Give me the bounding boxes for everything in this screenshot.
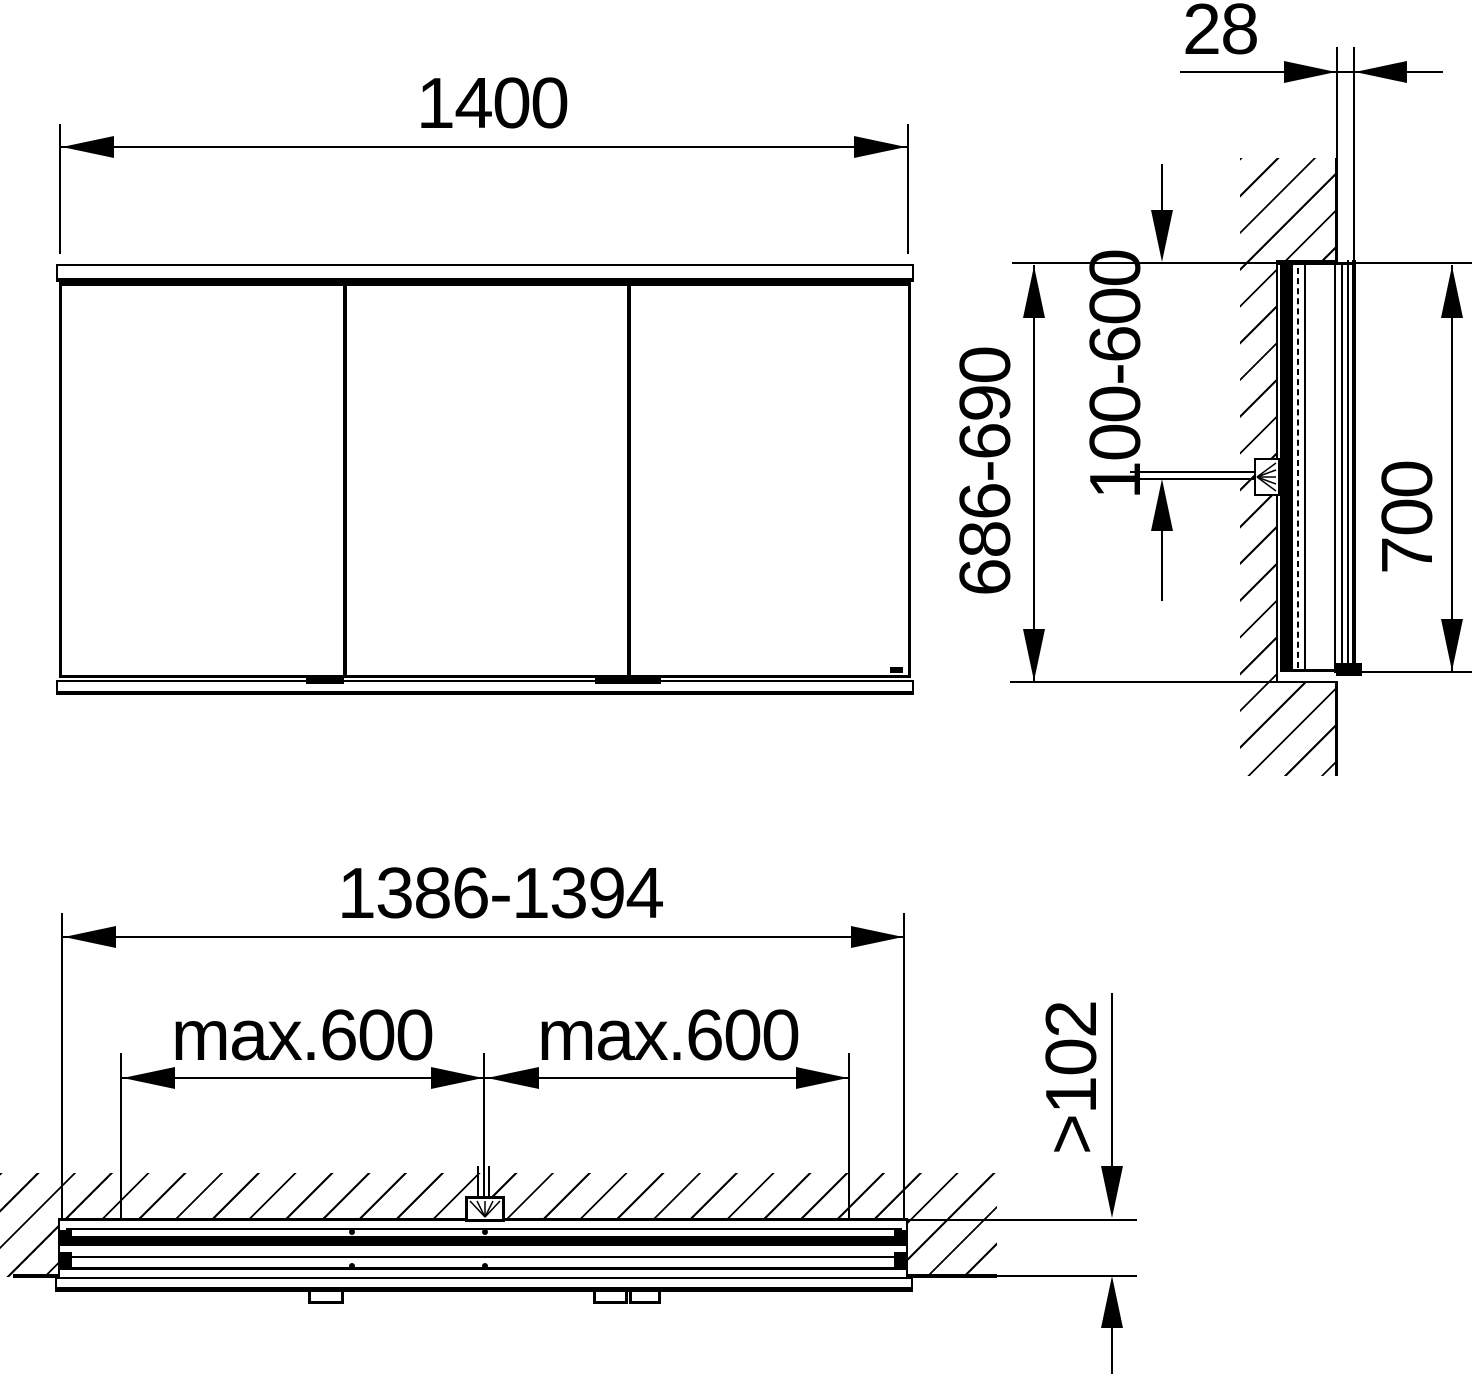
hinge-dot	[349, 1263, 355, 1269]
extension-line	[61, 913, 63, 1219]
handle-tab	[629, 1289, 661, 1304]
door-front-panel	[55, 1277, 913, 1292]
wall-face-line	[908, 1274, 997, 1278]
wall-face-line	[13, 1274, 58, 1278]
end-bracket	[60, 1252, 72, 1270]
junction-box	[465, 1196, 505, 1222]
niche-edge-line	[906, 1218, 908, 1277]
cable-fan-icon	[468, 1199, 502, 1219]
dimension-line	[1111, 1328, 1113, 1374]
dimension-line	[61, 936, 905, 938]
dim-max-right-label: max.600	[537, 1000, 799, 1072]
arrowhead-right	[796, 1067, 848, 1089]
end-bracket	[60, 1230, 72, 1246]
handle-tab	[593, 1289, 628, 1304]
dim-niche-width-label: 1386-1394	[337, 858, 663, 930]
end-bracket	[894, 1230, 906, 1246]
extension-line	[908, 1219, 1137, 1221]
cable-line	[477, 1166, 479, 1198]
arrowhead-left	[64, 926, 116, 948]
handle-tab	[308, 1289, 344, 1304]
hinge-dot	[482, 1263, 488, 1269]
hinge-dot	[482, 1229, 488, 1235]
hinge-dot	[349, 1229, 355, 1235]
extension-line	[903, 913, 905, 1219]
arrowhead-left	[123, 1067, 175, 1089]
center-extension-line	[483, 1053, 485, 1198]
cable-line	[488, 1166, 490, 1198]
cabinet-body-line	[66, 1256, 902, 1258]
mirror-door-band	[66, 1236, 902, 1246]
technical-drawing-canvas: 1400 28	[0, 0, 1476, 1376]
arrowhead-left	[487, 1067, 539, 1089]
dim-max-left-label: max.600	[171, 1000, 433, 1072]
arrowhead-up	[1101, 1276, 1123, 1328]
arrowhead-right	[431, 1067, 483, 1089]
arrowhead-down	[1101, 1166, 1123, 1218]
arrowhead-right	[851, 926, 903, 948]
end-bracket	[894, 1252, 906, 1270]
plan-view: 1386-1394 max.600 max.600 >102	[0, 0, 1476, 1376]
dim-niche-depth-label: >102	[1036, 1001, 1108, 1155]
